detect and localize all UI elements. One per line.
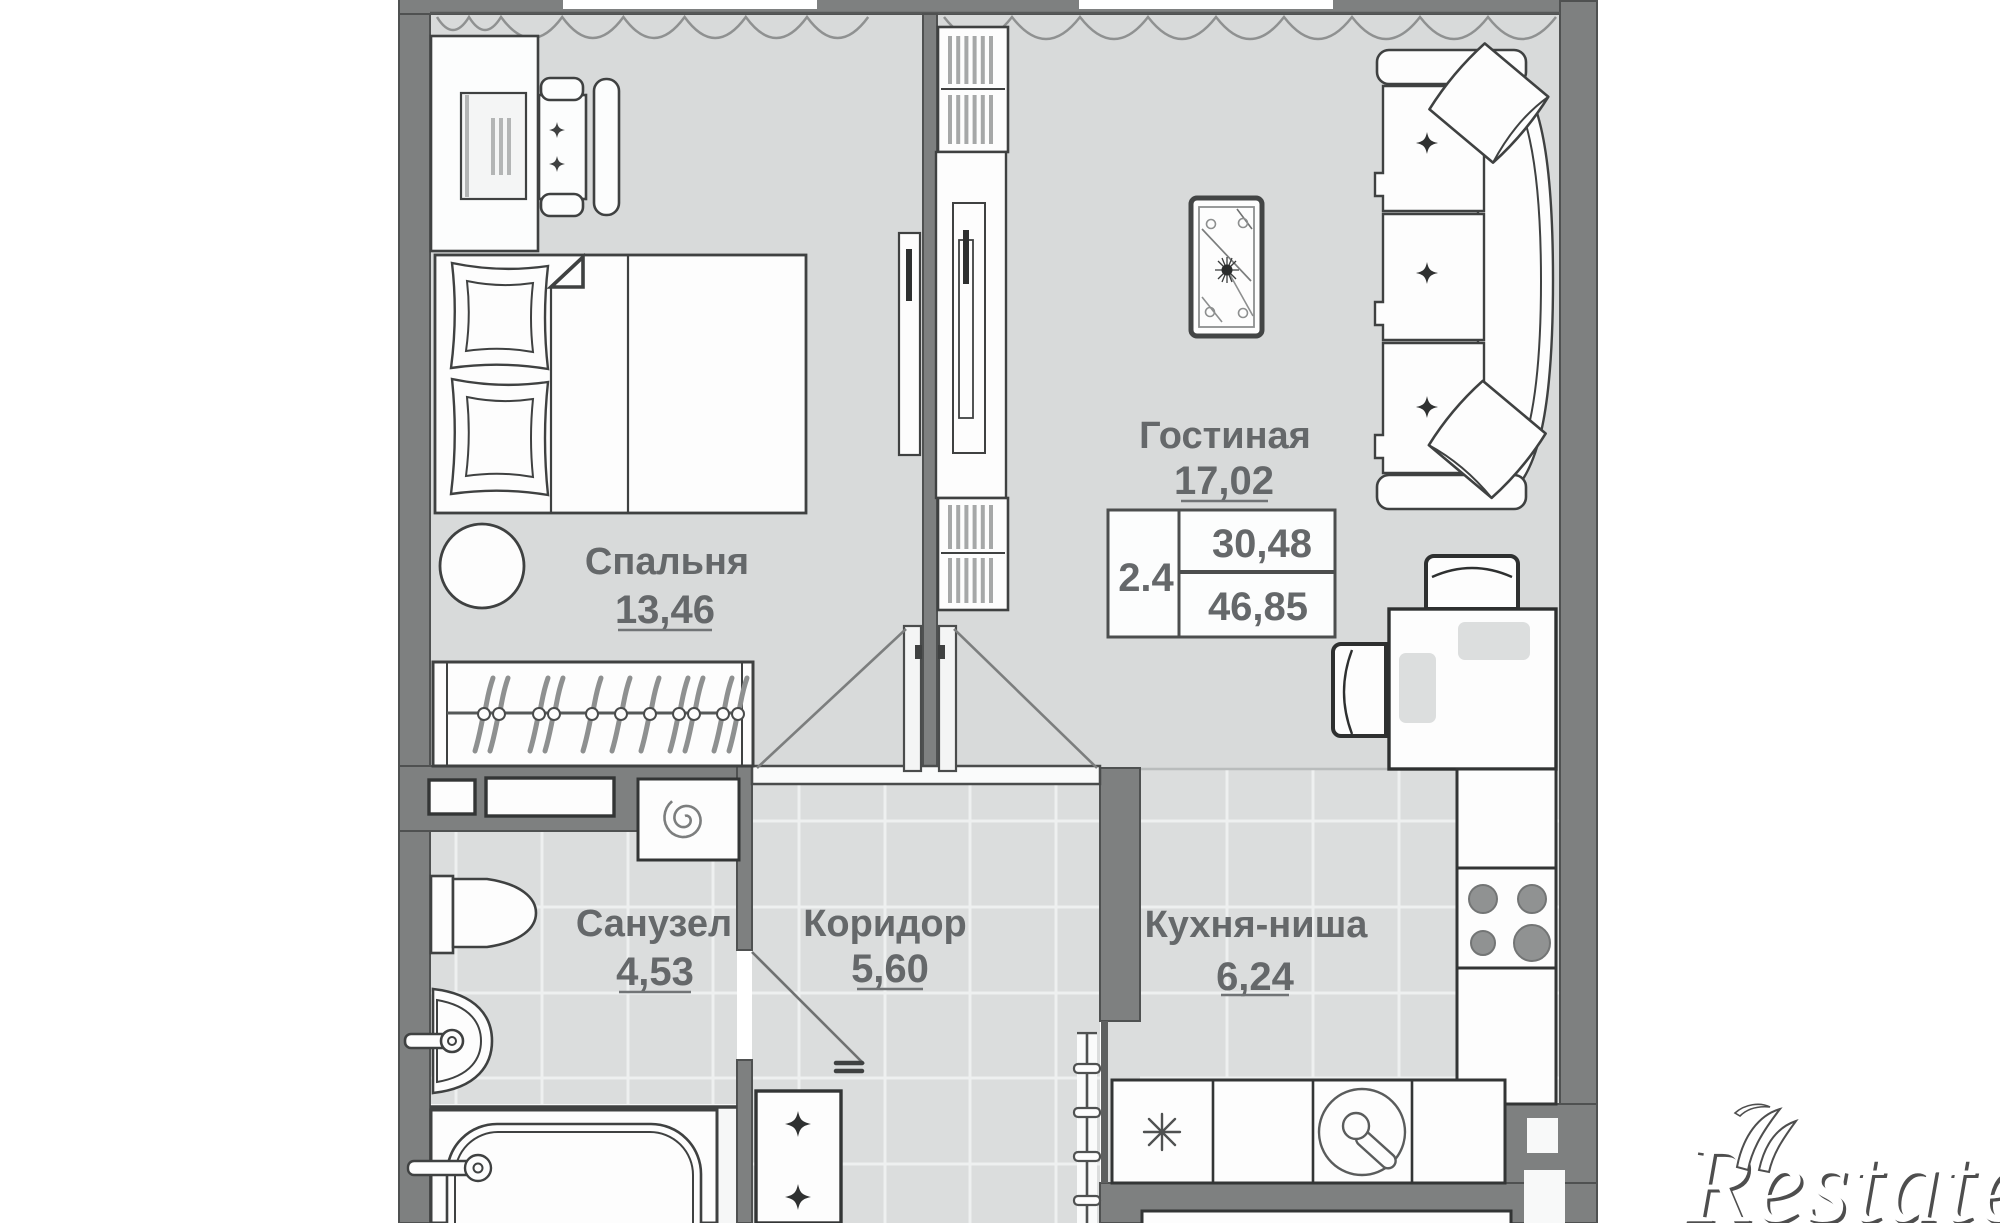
svg-text:6,24: 6,24 <box>1216 955 1295 999</box>
svg-text:Restate: Restate <box>1683 1123 2000 1223</box>
svg-text:Спальня: Спальня <box>585 541 749 583</box>
svg-text:30,48: 30,48 <box>1212 522 1312 566</box>
svg-text:Кухня-ниша: Кухня-ниша <box>1145 904 1369 946</box>
svg-text:4,53: 4,53 <box>616 950 694 994</box>
svg-text:2.4: 2.4 <box>1118 556 1174 600</box>
svg-text:46,85: 46,85 <box>1208 585 1308 629</box>
svg-text:13,46: 13,46 <box>615 588 715 632</box>
svg-text:Санузел: Санузел <box>576 903 732 945</box>
svg-text:Коридор: Коридор <box>803 903 967 945</box>
svg-text:Гостиная: Гостиная <box>1139 415 1311 457</box>
svg-text:17,02: 17,02 <box>1174 459 1274 503</box>
svg-text:5,60: 5,60 <box>851 947 929 991</box>
